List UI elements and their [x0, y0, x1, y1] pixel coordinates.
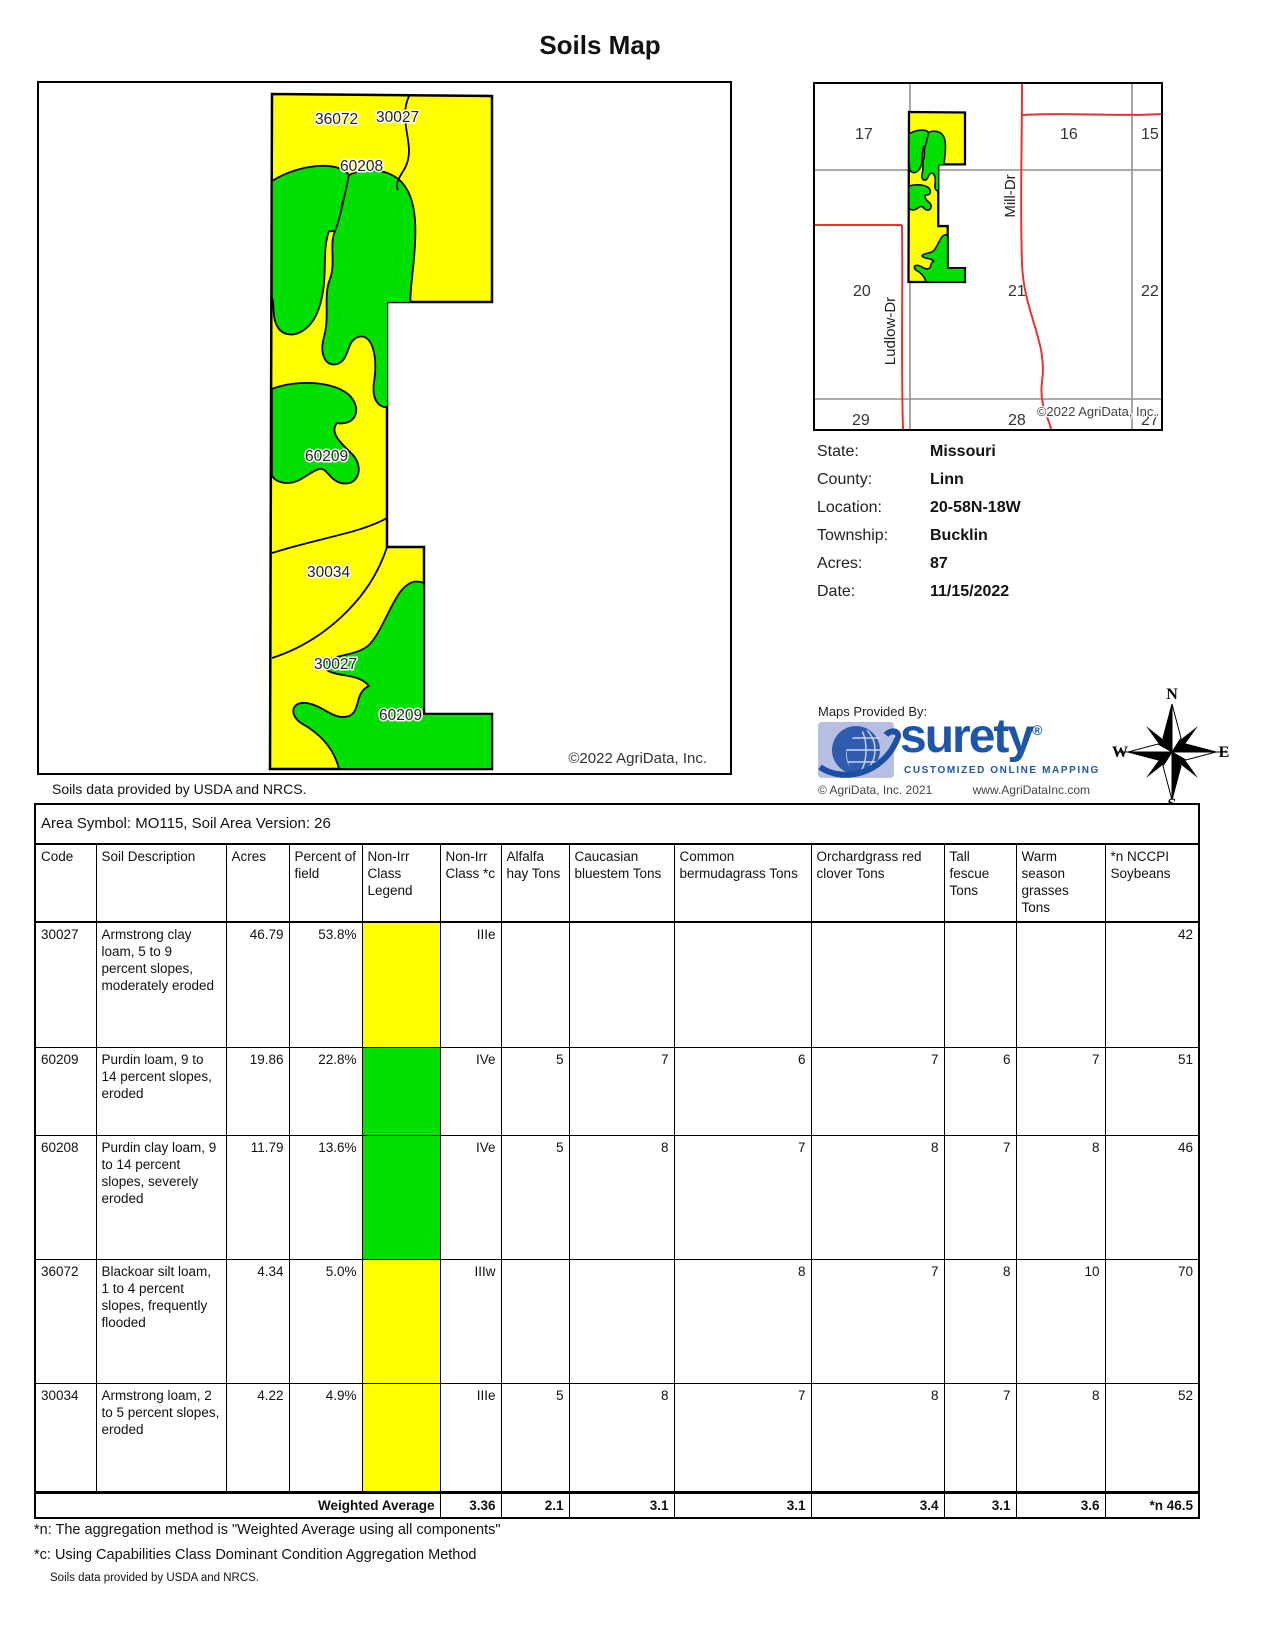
cell-nccpi: 46 [1105, 1135, 1199, 1259]
cell-bermudagrass: 6 [674, 1047, 811, 1135]
table-row: 30027 Armstrong clay loam, 5 to 9 percen… [35, 922, 1199, 1047]
col-header-nccpi: *n NCCPI Soybeans [1105, 844, 1199, 922]
section-22: 22 [1141, 283, 1159, 300]
mini-parcel [908, 112, 964, 282]
cell-tall-fescue [944, 922, 1016, 1047]
wavg-tall-fescue: 3.1 [944, 1492, 1016, 1518]
road-label-ludlow-dr: Ludlow-Dr [882, 297, 899, 365]
info-row-county: County: Linn [817, 466, 1147, 494]
area-symbol-text: Area Symbol: MO115, Soil Area Version: 2… [35, 804, 1199, 844]
info-row-township: Township: Bucklin [817, 522, 1147, 550]
surety-logo: surety® CUSTOMIZED ONLINE MAPPING [818, 721, 1118, 779]
soils-map-report: Soils Map [0, 0, 1275, 1650]
cell-code: 60208 [35, 1135, 96, 1259]
cell-warm-season: 8 [1016, 1383, 1105, 1492]
section-29: 29 [852, 412, 870, 429]
footnote-c: *c: Using Capabilities Class Dominant Co… [34, 1547, 501, 1563]
date-label: Date: [817, 583, 930, 601]
state-value: Missouri [930, 443, 996, 461]
compass-rose: N S W E [1112, 686, 1232, 815]
cell-tall-fescue: 8 [944, 1259, 1016, 1383]
cell-orchardgrass: 8 [811, 1135, 944, 1259]
cell-legend-swatch [362, 1259, 440, 1383]
cell-alfalfa: 5 [501, 1047, 569, 1135]
cell-nccpi: 70 [1105, 1259, 1199, 1383]
cell-tall-fescue: 7 [944, 1135, 1016, 1259]
cell-nccpi: 52 [1105, 1383, 1199, 1492]
road-label-mill-dr: Mill-Dr [1002, 174, 1019, 217]
weighted-average-row: Weighted Average 3.36 2.1 3.1 3.1 3.4 3.… [35, 1492, 1199, 1518]
cell-code: 30034 [35, 1383, 96, 1492]
table-row: 60208 Purdin clay loam, 9 to 14 percent … [35, 1135, 1199, 1259]
cell-alfalfa: 5 [501, 1383, 569, 1492]
cell-caucasian: 8 [569, 1383, 674, 1492]
section-21: 21 [1008, 283, 1026, 300]
location-value: 20-58N-18W [930, 499, 1021, 517]
cell-alfalfa [501, 922, 569, 1047]
cell-warm-season [1016, 922, 1105, 1047]
soil-label-30027-top: 30027 [376, 109, 419, 126]
cell-class-c: IIIe [440, 1383, 501, 1492]
soil-label-60208: 60208 [340, 158, 383, 175]
wavg-class-c: 3.36 [440, 1492, 501, 1518]
cell-code: 30027 [35, 922, 96, 1047]
cell-caucasian [569, 922, 674, 1047]
inset-map-canvas: 17 16 15 20 21 22 29 28 27 Mill-Dr Ludlo… [815, 84, 1161, 429]
cell-percent: 4.9% [289, 1383, 362, 1492]
cell-orchardgrass: 8 [811, 1383, 944, 1492]
table-row: 36072 Blackoar silt loam, 1 to 4 percent… [35, 1259, 1199, 1383]
col-header-caucasian: Caucasian bluestem Tons [569, 844, 674, 922]
cell-percent: 13.6% [289, 1135, 362, 1259]
cell-nccpi: 51 [1105, 1047, 1199, 1135]
soil-label-36072: 36072 [315, 111, 358, 128]
col-header-description: Soil Description [96, 844, 226, 922]
col-header-percent: Percent of field [289, 844, 362, 922]
wavg-warm-season: 3.6 [1016, 1492, 1105, 1518]
cell-code: 36072 [35, 1259, 96, 1383]
cell-bermudagrass: 7 [674, 1135, 811, 1259]
cell-description: Purdin clay loam, 9 to 14 percent slopes… [96, 1135, 226, 1259]
section-numbers: 17 16 15 20 21 22 29 28 27 [852, 126, 1159, 429]
surety-tagline: CUSTOMIZED ONLINE MAPPING [904, 765, 1100, 776]
cell-class-c: IIIe [440, 922, 501, 1047]
cell-legend-swatch [362, 1383, 440, 1492]
footnote-source: Soils data provided by USDA and NRCS. [50, 1572, 501, 1584]
cell-code: 60209 [35, 1047, 96, 1135]
col-header-legend: Non-Irr Class Legend [362, 844, 440, 922]
county-label: County: [817, 471, 930, 489]
cell-nccpi: 42 [1105, 922, 1199, 1047]
road-mill-dr [1021, 84, 1051, 429]
cell-acres: 4.22 [226, 1383, 289, 1492]
compass-n-label: N [1166, 686, 1178, 703]
acres-label: Acres: [817, 555, 930, 573]
cell-tall-fescue: 7 [944, 1383, 1016, 1492]
soil-label-30027-low: 30027 [314, 656, 357, 673]
parcel-shape [270, 94, 492, 769]
cell-orchardgrass [811, 922, 944, 1047]
registered-mark: ® [1032, 722, 1042, 738]
soils-map: 36072 30027 60208 60209 30034 30027 6020… [37, 81, 732, 775]
parcel-info: State: Missouri County: Linn Location: 2… [817, 438, 1147, 606]
provider-copyright: © AgriData, Inc. 2021 [818, 783, 932, 797]
provider-copyright-row: © AgriData, Inc. 2021 www.AgriDataInc.co… [818, 783, 1090, 797]
cell-acres: 46.79 [226, 922, 289, 1047]
road-ludlow-dr [902, 225, 903, 429]
cell-alfalfa [501, 1259, 569, 1383]
cell-percent: 5.0% [289, 1259, 362, 1383]
col-header-class-c: Non-Irr Class *c [440, 844, 501, 922]
road-east-west-north [1022, 114, 1161, 115]
area-symbol-row: Area Symbol: MO115, Soil Area Version: 2… [35, 804, 1199, 844]
page-title: Soils Map [0, 30, 1200, 61]
cell-percent: 22.8% [289, 1047, 362, 1135]
surety-brand-text: surety [900, 710, 1032, 763]
weighted-average-label: Weighted Average [35, 1492, 440, 1518]
cell-alfalfa: 5 [501, 1135, 569, 1259]
cell-description: Armstrong clay loam, 5 to 9 percent slop… [96, 922, 226, 1047]
compass-icon: N S W E [1112, 686, 1232, 810]
cell-description: Armstrong loam, 2 to 5 percent slopes, e… [96, 1383, 226, 1492]
footnotes: *n: The aggregation method is "Weighted … [34, 1522, 501, 1593]
section-20: 20 [853, 283, 871, 300]
info-row-date: Date: 11/15/2022 [817, 578, 1147, 606]
wavg-nccpi: *n 46.5 [1105, 1492, 1199, 1518]
cell-warm-season: 10 [1016, 1259, 1105, 1383]
col-header-warm-season: Warm season grasses Tons [1016, 844, 1105, 922]
cell-legend-swatch [362, 1135, 440, 1259]
surety-wordmark: surety® [900, 709, 1042, 764]
cell-legend-swatch [362, 1047, 440, 1135]
section-15: 15 [1141, 126, 1159, 143]
map-caption: Soils data provided by USDA and NRCS. [52, 781, 306, 797]
cell-acres: 11.79 [226, 1135, 289, 1259]
inset-copyright: ©2022 AgriData, Inc. [1037, 404, 1157, 419]
col-header-code: Code [35, 844, 96, 922]
col-header-acres: Acres [226, 844, 289, 922]
section-28: 28 [1008, 412, 1026, 429]
provider-website: www.AgriDataInc.com [973, 783, 1090, 797]
compass-w-label: W [1112, 744, 1128, 761]
cell-caucasian: 7 [569, 1047, 674, 1135]
location-inset-map: 17 16 15 20 21 22 29 28 27 Mill-Dr Ludlo… [813, 82, 1163, 431]
soil-label-60209-bottom: 60209 [379, 707, 422, 724]
date-value: 11/15/2022 [930, 583, 1009, 601]
table-row: 30034 Armstrong loam, 2 to 5 percent slo… [35, 1383, 1199, 1492]
township-label: Township: [817, 527, 930, 545]
map-copyright: ©2022 AgriData, Inc. [568, 750, 707, 767]
info-row-location: Location: 20-58N-18W [817, 494, 1147, 522]
cell-bermudagrass: 7 [674, 1383, 811, 1492]
soil-label-60209-mid: 60209 [305, 448, 348, 465]
table-row: 60209 Purdin loam, 9 to 14 percent slope… [35, 1047, 1199, 1135]
wavg-alfalfa: 2.1 [501, 1492, 569, 1518]
township-value: Bucklin [930, 527, 988, 545]
soils-map-canvas: 36072 30027 60208 60209 30034 30027 6020… [39, 83, 730, 773]
cell-legend-swatch [362, 922, 440, 1047]
col-header-orchardgrass: Orchardgrass red clover Tons [811, 844, 944, 922]
section-17: 17 [855, 126, 873, 143]
provider-block: Maps Provided By: surety® CUSTOMIZED ONL… [818, 704, 1118, 797]
wavg-caucasian: 3.1 [569, 1492, 674, 1518]
cell-orchardgrass: 7 [811, 1047, 944, 1135]
cell-orchardgrass: 7 [811, 1259, 944, 1383]
info-row-acres: Acres: 87 [817, 550, 1147, 578]
county-value: Linn [930, 471, 964, 489]
cell-tall-fescue: 6 [944, 1047, 1016, 1135]
cell-description: Purdin loam, 9 to 14 percent slopes, ero… [96, 1047, 226, 1135]
section-16: 16 [1060, 126, 1078, 143]
cell-acres: 4.34 [226, 1259, 289, 1383]
cell-acres: 19.86 [226, 1047, 289, 1135]
acres-value: 87 [930, 555, 948, 573]
cell-bermudagrass: 8 [674, 1259, 811, 1383]
cell-caucasian [569, 1259, 674, 1383]
cell-class-c: IVe [440, 1135, 501, 1259]
col-header-bermudagrass: Common bermudagrass Tons [674, 844, 811, 922]
col-header-alfalfa: Alfalfa hay Tons [501, 844, 569, 922]
cell-caucasian: 8 [569, 1135, 674, 1259]
soil-label-30034: 30034 [307, 564, 350, 581]
cell-class-c: IIIw [440, 1259, 501, 1383]
cell-warm-season: 8 [1016, 1135, 1105, 1259]
info-row-state: State: Missouri [817, 438, 1147, 466]
wavg-bermudagrass: 3.1 [674, 1492, 811, 1518]
soils-table: Area Symbol: MO115, Soil Area Version: 2… [34, 803, 1200, 1519]
cell-class-c: IVe [440, 1047, 501, 1135]
state-label: State: [817, 443, 930, 461]
footnote-n: *n: The aggregation method is "Weighted … [34, 1522, 501, 1538]
cell-bermudagrass [674, 922, 811, 1047]
table-header-row: Code Soil Description Acres Percent of f… [35, 844, 1199, 922]
cell-description: Blackoar silt loam, 1 to 4 percent slope… [96, 1259, 226, 1383]
cell-percent: 53.8% [289, 922, 362, 1047]
compass-e-label: E [1219, 744, 1230, 761]
col-header-tall-fescue: Tall fescue Tons [944, 844, 1016, 922]
wavg-orchardgrass: 3.4 [811, 1492, 944, 1518]
location-label: Location: [817, 499, 930, 517]
cell-warm-season: 7 [1016, 1047, 1105, 1135]
